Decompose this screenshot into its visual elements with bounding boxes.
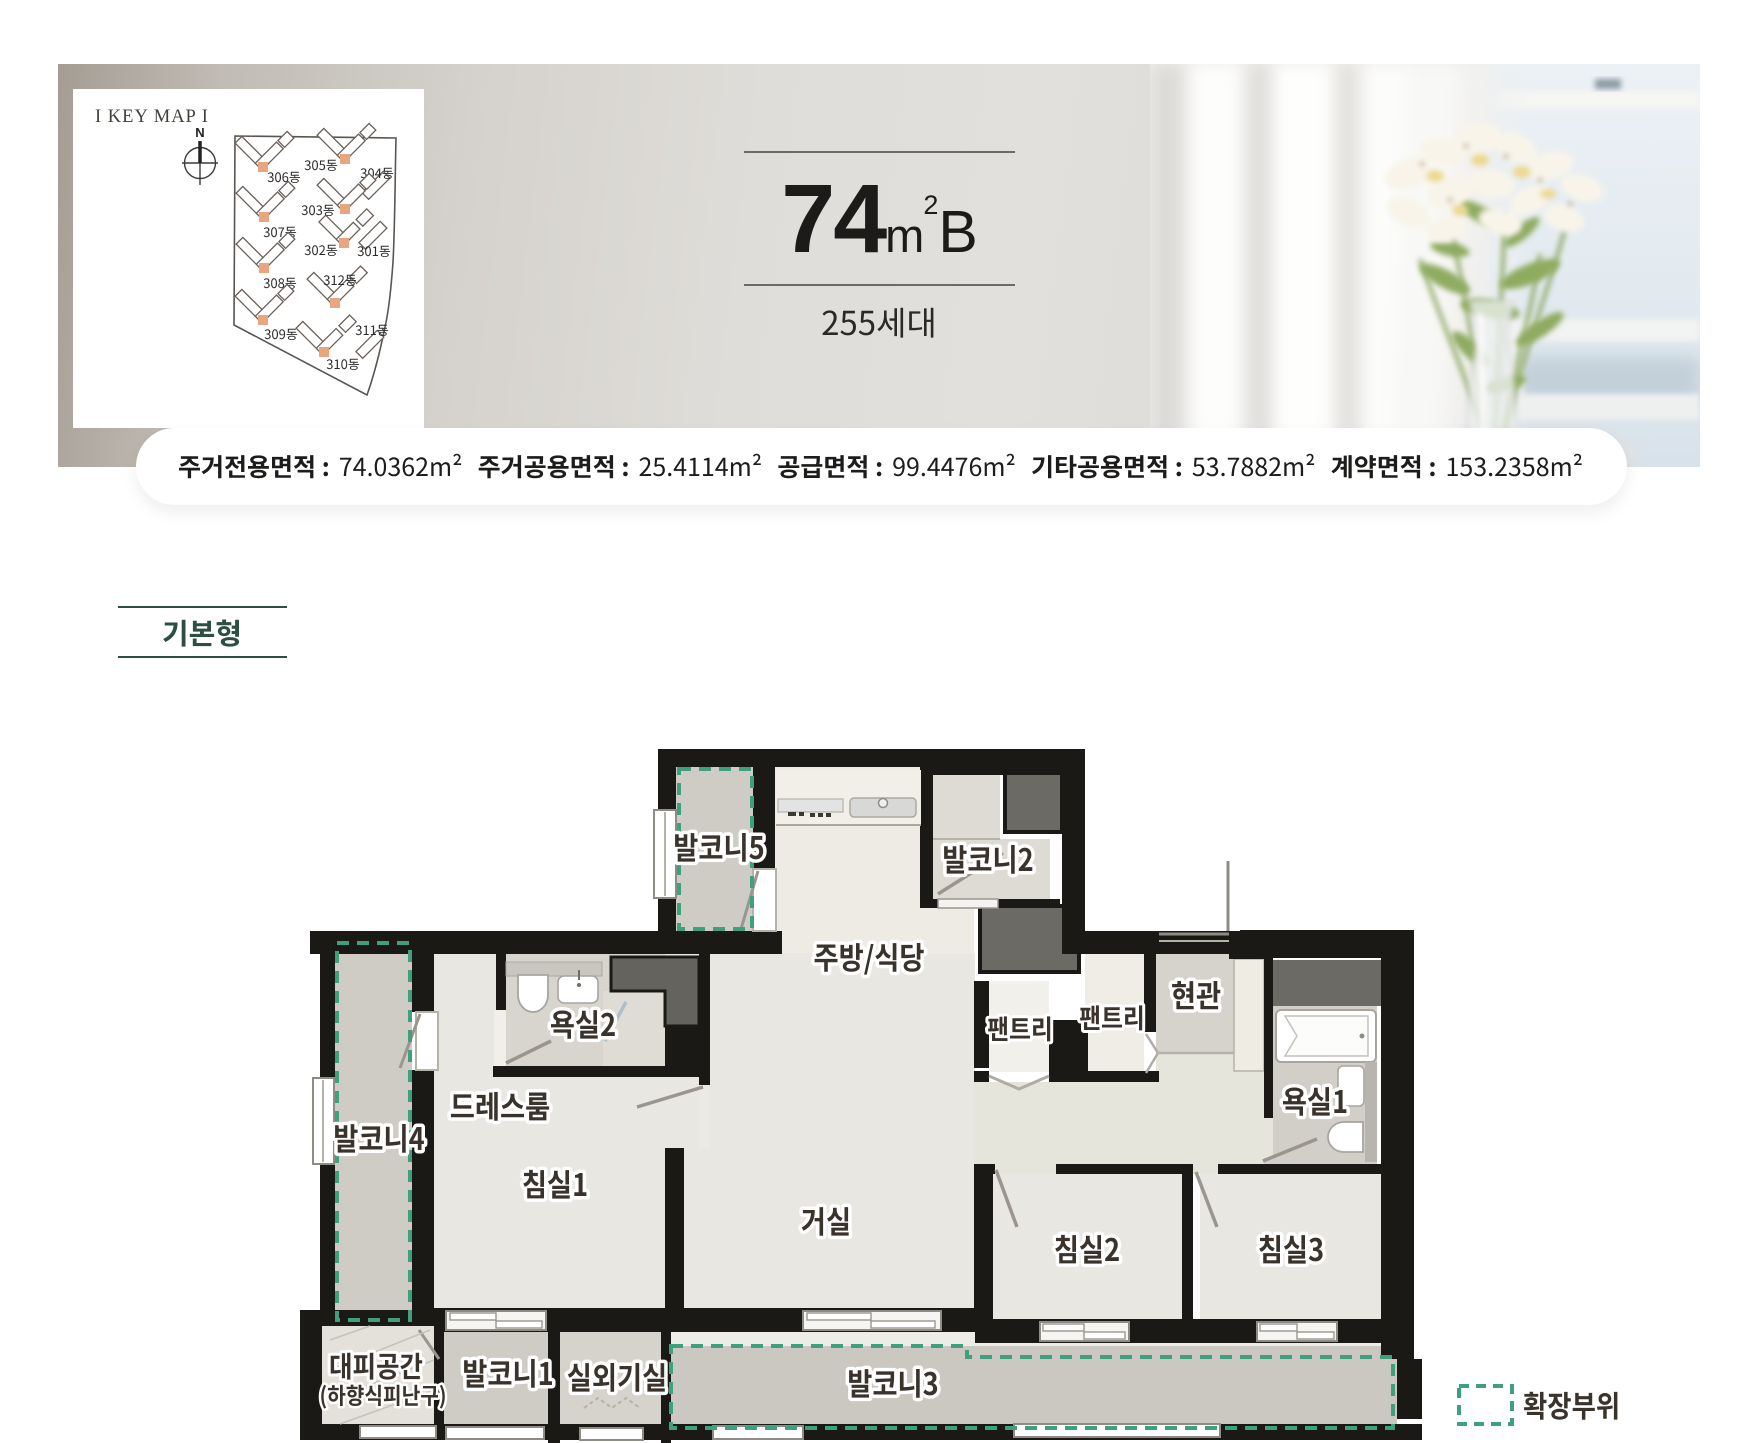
- svg-text:N: N: [195, 125, 204, 140]
